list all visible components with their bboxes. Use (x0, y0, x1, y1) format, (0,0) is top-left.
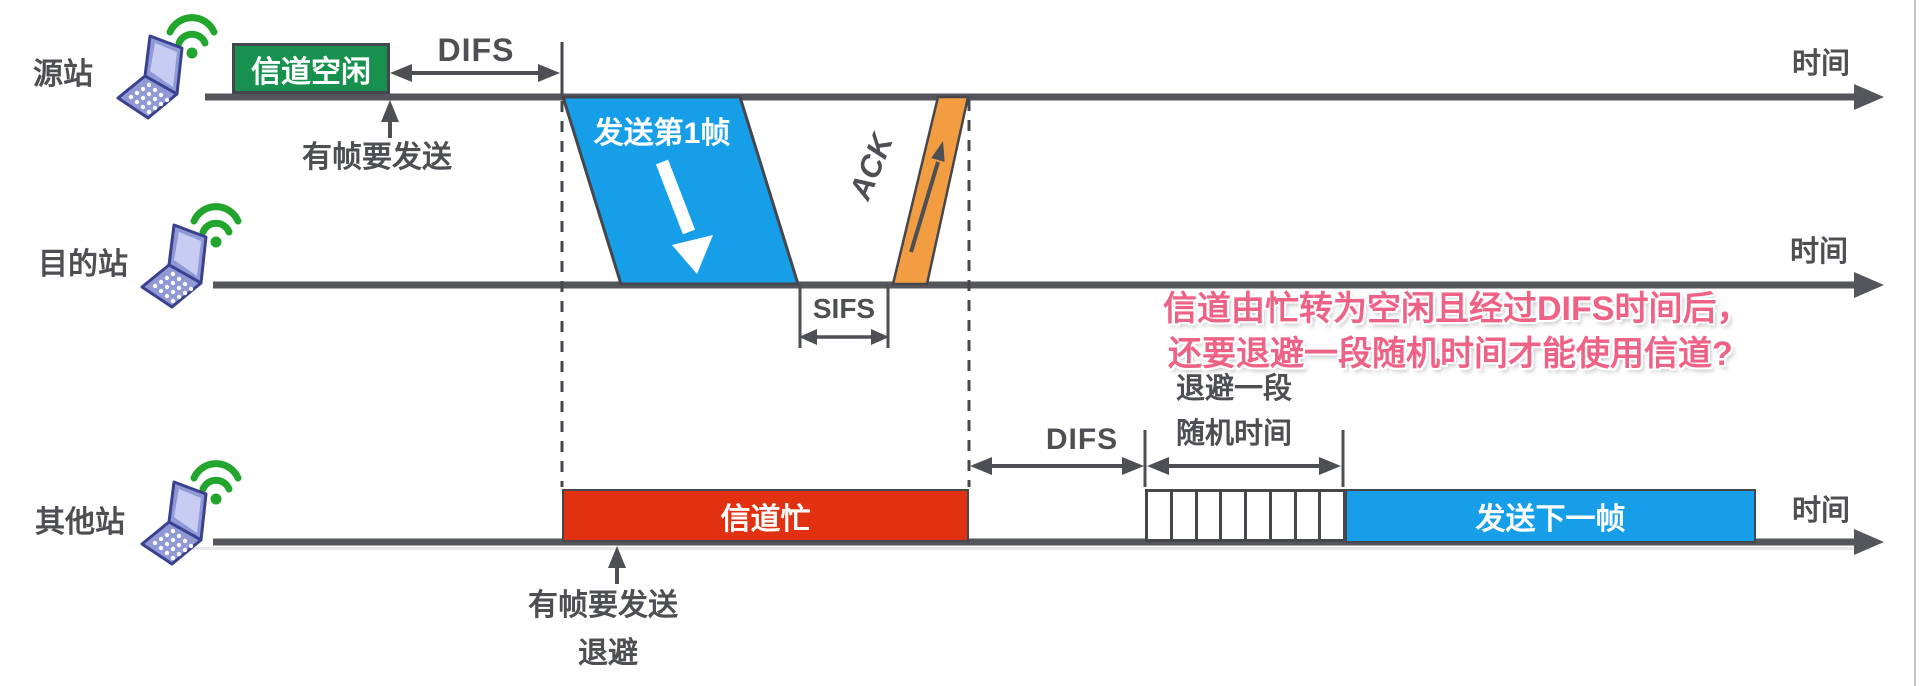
backoff-slot (1195, 492, 1220, 539)
time-label-source: 时间 (1792, 49, 1850, 81)
channel-idle-label: 信道空闲 (251, 47, 371, 91)
channel-busy-label: 信道忙 (721, 494, 811, 538)
difs-label-source: DIFS (425, 33, 527, 68)
station-label-source: 源站 (33, 58, 93, 91)
frame1-label: 发送第1帧 (576, 117, 748, 150)
source-timeline (205, 84, 1884, 110)
backoff-slots (1145, 489, 1346, 542)
frame-edge-line (1914, 0, 1916, 686)
time-label-others: 时间 (1792, 496, 1850, 528)
frame-arrival-label-source: 有帧要发送 (302, 141, 452, 174)
ack-parallelogram (893, 97, 968, 284)
station-label-others: 其他站 (35, 506, 125, 539)
next-frame-box: 发送下一帧 (1345, 489, 1756, 543)
backoff-slot (1318, 492, 1343, 539)
csma-ca-diagram: 源站 目的站 其他站 时间 时间 时间 信道空闲 DIFS 有帧要发送 发送第1… (0, 0, 1920, 686)
annotation-line1: 信道由忙转为空闲且经过DIFS时间后， (1163, 291, 1750, 328)
backoff-slot (1219, 492, 1244, 539)
sifs-label: SIFS (800, 294, 888, 325)
channel-busy-box: 信道忙 (562, 489, 969, 542)
difs-arrow-others (970, 457, 1144, 475)
backoff-slot (1269, 492, 1294, 539)
separator-line (150, 547, 1870, 550)
channel-idle-box: 信道空闲 (232, 43, 390, 94)
station-label-destination: 目的站 (38, 248, 128, 281)
backoff-label: 退避 (578, 637, 638, 670)
backoff-caption-line2: 随机时间 (1176, 419, 1292, 451)
destination-laptop (142, 207, 238, 307)
backoff-slot (1148, 492, 1170, 539)
time-label-destination: 时间 (1790, 237, 1848, 269)
backoff-caption-line1: 退避一段 (1176, 374, 1292, 406)
frame-arrival-arrow-others (608, 546, 626, 584)
annotation-line2: 还要退避一段随机时间才能使用信道? (1168, 336, 1733, 373)
backoff-slot (1170, 492, 1195, 539)
backoff-slot (1294, 492, 1319, 539)
difs-label-others: DIFS (1018, 423, 1146, 456)
source-laptop (118, 18, 214, 118)
next-frame-label: 发送下一帧 (1476, 494, 1626, 538)
backoff-slot (1244, 492, 1269, 539)
frame-arrival-arrow-source (381, 100, 399, 138)
frame-arrival-label-others: 有帧要发送 (528, 589, 678, 622)
